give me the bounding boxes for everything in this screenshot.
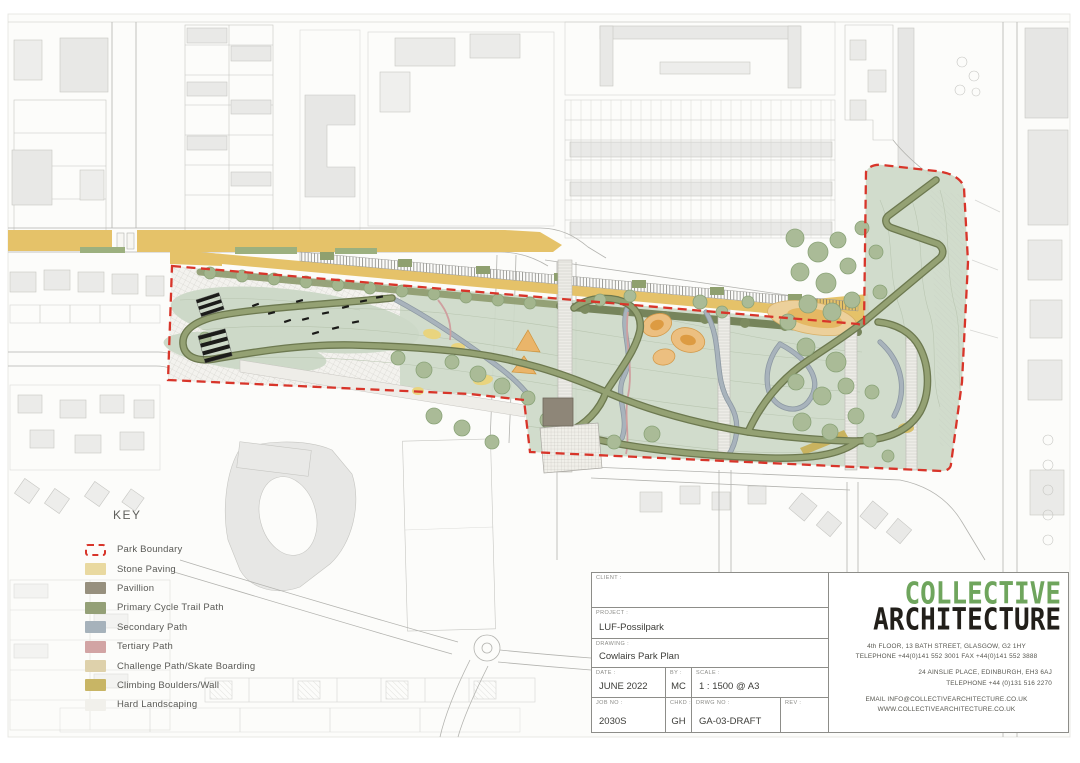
date-cell: DATE : JUNE 2022	[592, 668, 666, 697]
key-item-secondary-path: Secondary Path	[85, 618, 355, 637]
key-swatch-primary-cycle-trail-path	[85, 602, 106, 614]
key-swatch-climbing-boulders-wall	[85, 679, 106, 691]
key-swatch-pavillion	[85, 582, 106, 594]
date-by-scale-row: DATE : JUNE 2022 BY : MC SCALE : 1 : 150…	[592, 668, 828, 698]
firm-contact-details: 4th FLOOR, 13 BATH STREET, GLASGOW, G2 1…	[829, 642, 1068, 716]
key-swatch-tertiary-path	[85, 641, 106, 653]
project-row: PROJECT : LUF-Possilpark	[592, 608, 828, 639]
key-swatch-stone-paving	[85, 563, 106, 575]
key-swatch-secondary-path	[85, 621, 106, 633]
firm-logo-architecture: ARCHITECTURE	[829, 607, 1068, 635]
chkd-cell: CHKD : GH	[666, 698, 692, 732]
key-title: KEY	[113, 508, 355, 522]
drwg-no-value: GA-03-DRAFT	[699, 716, 761, 727]
firm-website: WWW.COLLECTIVEARCHITECTURE.CO.UK	[829, 705, 1068, 715]
job-no-cell: JOB NO : 2030S	[592, 698, 666, 732]
title-block: CLIENT : PROJECT : LUF-Possilpark DRAWIN…	[591, 572, 1069, 733]
key-item-stone-paving: Stone Paving	[85, 559, 355, 578]
key-item-pavillion: Pavillion	[85, 579, 355, 598]
project-value: LUF-Possilpark	[599, 622, 664, 633]
job-no-value: 2030S	[599, 716, 626, 727]
key-item-tertiary-path: Tertiary Path	[85, 637, 355, 656]
drawing-value: Cowlairs Park Plan	[599, 651, 679, 662]
title-block-table: CLIENT : PROJECT : LUF-Possilpark DRAWIN…	[591, 572, 829, 733]
key-item-primary-cycle-trail-path: Primary Cycle Trail Path	[85, 598, 355, 617]
map-key: KEY Park Boundary Stone Paving Pavillion…	[85, 508, 355, 715]
client-row: CLIENT :	[592, 573, 828, 608]
firm-address-edinburgh: 24 AINSLIE PLACE, EDINBURGH, EH3 6AJ	[829, 668, 1068, 678]
key-item-challenge-path-skate-boarding: Challenge Path/Skate Boarding	[85, 656, 355, 675]
drwg-no-cell: DRWG NO : GA-03-DRAFT	[692, 698, 781, 732]
by-cell: BY : MC	[666, 668, 692, 697]
firm-address-glasgow: 4th FLOOR, 13 BATH STREET, GLASGOW, G2 1…	[829, 642, 1068, 652]
rev-cell: REV :	[781, 698, 828, 732]
key-swatch-challenge-path-skate-boarding	[85, 660, 106, 672]
firm-email: EMAIL INFO@COLLECTIVEARCHITECTURE.CO.UK	[829, 695, 1068, 705]
key-swatch-park-boundary	[85, 544, 106, 556]
site-plan-sheet: KEY Park Boundary Stone Paving Pavillion…	[0, 0, 1080, 763]
drawing-row: DRAWING : Cowlairs Park Plan	[592, 639, 828, 668]
scale-value: 1 : 1500 @ A3	[699, 681, 759, 692]
key-item-climbing-boulders-wall: Climbing Boulders/Wall	[85, 676, 355, 695]
firm-logo-panel: COLLECTIVE ARCHITECTURE 4th FLOOR, 13 BA…	[829, 572, 1069, 733]
firm-phone-glasgow: TELEPHONE +44(0)141 552 3001 FAX +44(0)1…	[829, 652, 1068, 662]
by-value: MC	[671, 681, 686, 692]
firm-phone-edinburgh: TELEPHONE +44 (0)131 516 2270	[829, 679, 1068, 689]
job-chkd-drwg-rev-row: JOB NO : 2030S CHKD : GH DRWG NO : GA-03…	[592, 698, 828, 732]
date-value: JUNE 2022	[599, 681, 648, 692]
key-swatch-hard-landscaping	[85, 699, 106, 711]
scale-cell: SCALE : 1 : 1500 @ A3	[692, 668, 828, 697]
chkd-value: GH	[671, 716, 685, 727]
key-item-hard-landscaping: Hard Landscaping	[85, 695, 355, 714]
key-item-park-boundary: Park Boundary	[85, 540, 355, 559]
